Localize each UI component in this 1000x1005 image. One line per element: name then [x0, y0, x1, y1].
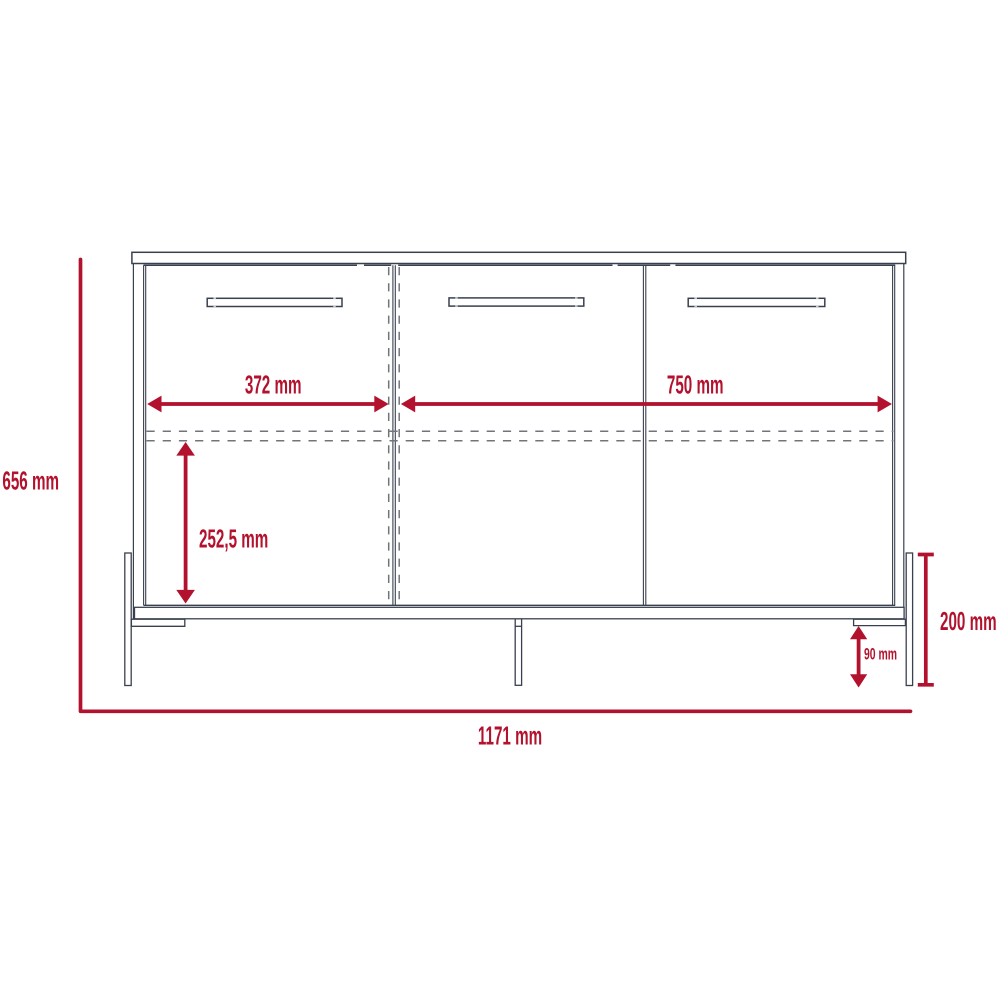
svg-text:750 mm: 750 mm	[667, 370, 724, 399]
svg-text:372 mm: 372 mm	[245, 370, 302, 399]
svg-text:200 mm: 200 mm	[940, 607, 997, 636]
svg-text:90 mm: 90 mm	[864, 645, 897, 663]
svg-text:1171 mm: 1171 mm	[478, 721, 542, 750]
svg-text:252,5 mm: 252,5 mm	[199, 524, 268, 553]
svg-text:656 mm: 656 mm	[2, 466, 59, 495]
